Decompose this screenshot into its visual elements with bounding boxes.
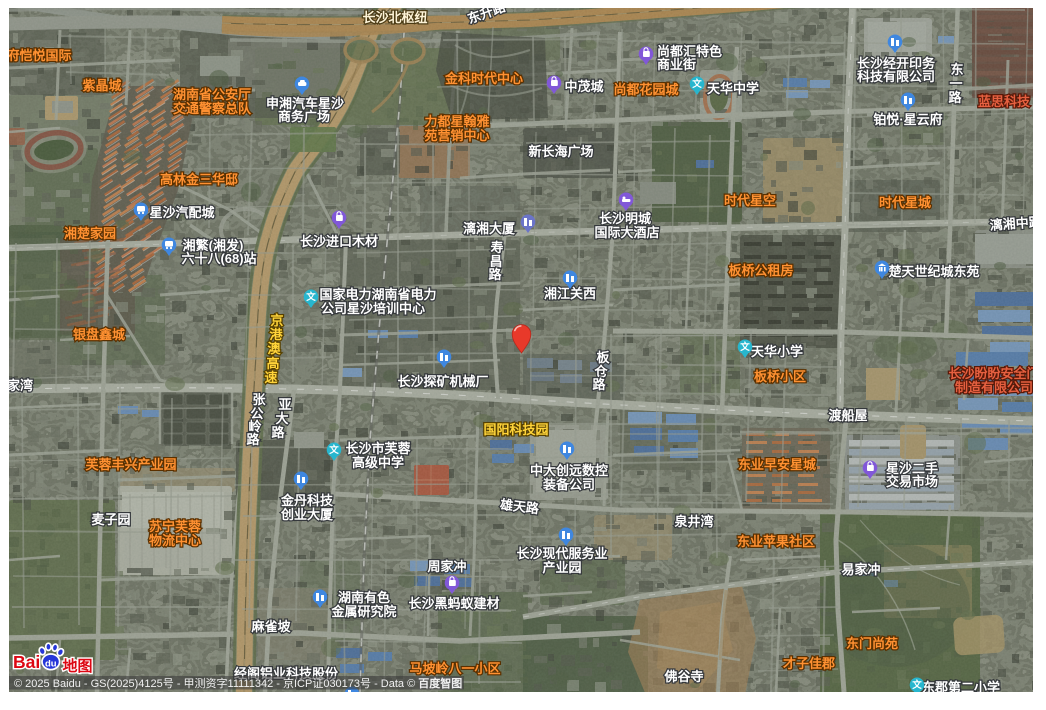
svg-text:长沙明城: 长沙明城 (599, 211, 651, 226)
svg-text:紫晶城: 紫晶城 (82, 78, 121, 93)
svg-text:国际大酒店: 国际大酒店 (594, 225, 659, 240)
svg-text:金科时代中心: 金科时代中心 (444, 71, 523, 86)
svg-text:渡船屋: 渡船屋 (828, 408, 867, 423)
svg-text:港: 港 (269, 327, 283, 342)
svg-text:芙蓉丰兴产业园: 芙蓉丰兴产业园 (85, 457, 176, 472)
svg-text:佛谷寺: 佛谷寺 (663, 669, 703, 684)
svg-text:制造有限公司: 制造有限公司 (955, 380, 1033, 395)
svg-text:高林金三华邸: 高林金三华邸 (160, 172, 238, 187)
svg-text:漓湘大厦: 漓湘大厦 (463, 221, 516, 236)
svg-text:马坡岭八一小区: 马坡岭八一小区 (409, 661, 500, 676)
svg-text:文: 文 (911, 679, 922, 691)
svg-text:东门尚苑: 东门尚苑 (846, 636, 898, 651)
svg-text:麻雀坡: 麻雀坡 (250, 619, 291, 634)
svg-text:Bai: Bai (13, 652, 40, 672)
svg-text:家湾: 家湾 (7, 378, 33, 393)
svg-text:六十八(68)站: 六十八(68)站 (181, 251, 256, 266)
svg-text:中茂城: 中茂城 (564, 79, 603, 94)
svg-text:东业苹果社区: 东业苹果社区 (737, 534, 815, 549)
svg-text:湖南有色: 湖南有色 (338, 590, 390, 605)
svg-text:文: 文 (305, 291, 316, 303)
svg-text:长沙市芙蓉: 长沙市芙蓉 (345, 441, 411, 456)
svg-text:物流中心: 物流中心 (149, 533, 201, 548)
svg-text:© 2025 Baidu - GS(2025)4125号 -: © 2025 Baidu - GS(2025)4125号 - 甲测资字11111… (14, 676, 462, 690)
svg-text:商务广场: 商务广场 (278, 109, 330, 124)
svg-text:文: 文 (739, 341, 750, 353)
svg-text:地图: 地图 (63, 657, 93, 675)
svg-text:时代星城: 时代星城 (879, 195, 931, 210)
svg-text:板桥公租房: 板桥公租房 (728, 263, 793, 278)
svg-text:长沙探矿机械厂: 长沙探矿机械厂 (397, 374, 488, 389)
svg-text:路: 路 (488, 267, 502, 282)
svg-text:路: 路 (592, 377, 606, 392)
svg-text:长沙盼盼安全门: 长沙盼盼安全门 (948, 366, 1039, 381)
svg-text:装备公司: 装备公司 (542, 477, 595, 492)
svg-text:科技有限公司: 科技有限公司 (857, 69, 935, 84)
svg-text:天华小学: 天华小学 (751, 344, 803, 359)
svg-text:国家电力湖南省电力: 国家电力湖南省电力 (319, 287, 436, 302)
svg-text:大: 大 (275, 411, 288, 426)
svg-text:星沙汽配城: 星沙汽配城 (149, 205, 214, 220)
svg-text:麦子园: 麦子园 (91, 512, 130, 527)
svg-text:高: 高 (266, 356, 279, 371)
svg-text:金丹科技: 金丹科技 (280, 493, 334, 508)
svg-text:速: 速 (264, 370, 277, 385)
svg-text:板桥小区: 板桥小区 (754, 369, 806, 384)
svg-text:交易市场: 交易市场 (886, 474, 938, 489)
svg-text:湖南省公安厅: 湖南省公安厅 (173, 87, 251, 102)
svg-text:公司星沙培训中心: 公司星沙培训中心 (321, 301, 425, 316)
svg-text:板: 板 (596, 350, 610, 365)
svg-text:路: 路 (948, 90, 962, 105)
svg-text:交通警察总队: 交通警察总队 (173, 101, 252, 116)
svg-text:长沙进口木材: 长沙进口木材 (300, 234, 378, 249)
svg-text:长沙现代服务业: 长沙现代服务业 (516, 546, 607, 561)
svg-text:府恺悦国际: 府恺悦国际 (6, 48, 71, 63)
svg-text:苏宁芙蓉: 苏宁芙蓉 (149, 519, 202, 534)
svg-text:澳: 澳 (267, 341, 281, 356)
svg-text:寿: 寿 (490, 240, 503, 255)
svg-text:易家冲: 易家冲 (841, 562, 880, 577)
svg-text:商业街: 商业街 (657, 57, 696, 72)
svg-text:国阳科技园: 国阳科技园 (483, 422, 548, 437)
svg-text:金属研究院: 金属研究院 (330, 604, 396, 619)
svg-text:楚天世纪城东苑: 楚天世纪城东苑 (888, 264, 979, 279)
svg-text:文: 文 (691, 78, 702, 90)
svg-text:蓝思科技: 蓝思科技 (978, 94, 1031, 109)
svg-text:文: 文 (328, 444, 339, 456)
svg-text:湘楚家园: 湘楚家园 (64, 226, 116, 241)
svg-text:尚都花园城: 尚都花园城 (613, 82, 678, 97)
svg-text:银盘鑫城: 银盘鑫城 (73, 327, 125, 342)
svg-text:东: 东 (950, 62, 963, 77)
svg-text:泉井湾: 泉井湾 (674, 514, 713, 529)
svg-text:路: 路 (246, 432, 260, 447)
svg-text:天华中学: 天华中学 (707, 81, 759, 96)
svg-text:力都星翰雅: 力都星翰雅 (424, 114, 489, 129)
svg-text:铂悦·星云府: 铂悦·星云府 (873, 112, 942, 127)
svg-text:才子佳郡: 才子佳郡 (783, 656, 835, 671)
svg-text:一: 一 (949, 76, 962, 91)
svg-text:中大创远数控: 中大创远数控 (530, 463, 608, 478)
svg-text:创业大厦: 创业大厦 (280, 507, 334, 522)
svg-text:京: 京 (270, 313, 283, 328)
svg-text:苑营销中心: 苑营销中心 (423, 128, 489, 143)
svg-text:长沙黑蚂蚁建材: 长沙黑蚂蚁建材 (408, 596, 499, 611)
svg-text:时代星空: 时代星空 (724, 193, 776, 208)
svg-text:亚: 亚 (278, 397, 291, 412)
svg-text:du: du (45, 659, 57, 670)
svg-text:张: 张 (252, 392, 266, 407)
svg-text:高级中学: 高级中学 (352, 455, 404, 470)
svg-text:周家冲: 周家冲 (427, 559, 466, 574)
svg-text:产业园: 产业园 (542, 560, 581, 575)
svg-text:长沙北枢纽: 长沙北枢纽 (362, 10, 427, 25)
svg-text:新长海广场: 新长海广场 (528, 144, 593, 159)
svg-text:路: 路 (271, 425, 285, 440)
svg-text:东业早安星城: 东业早安星城 (738, 457, 816, 472)
